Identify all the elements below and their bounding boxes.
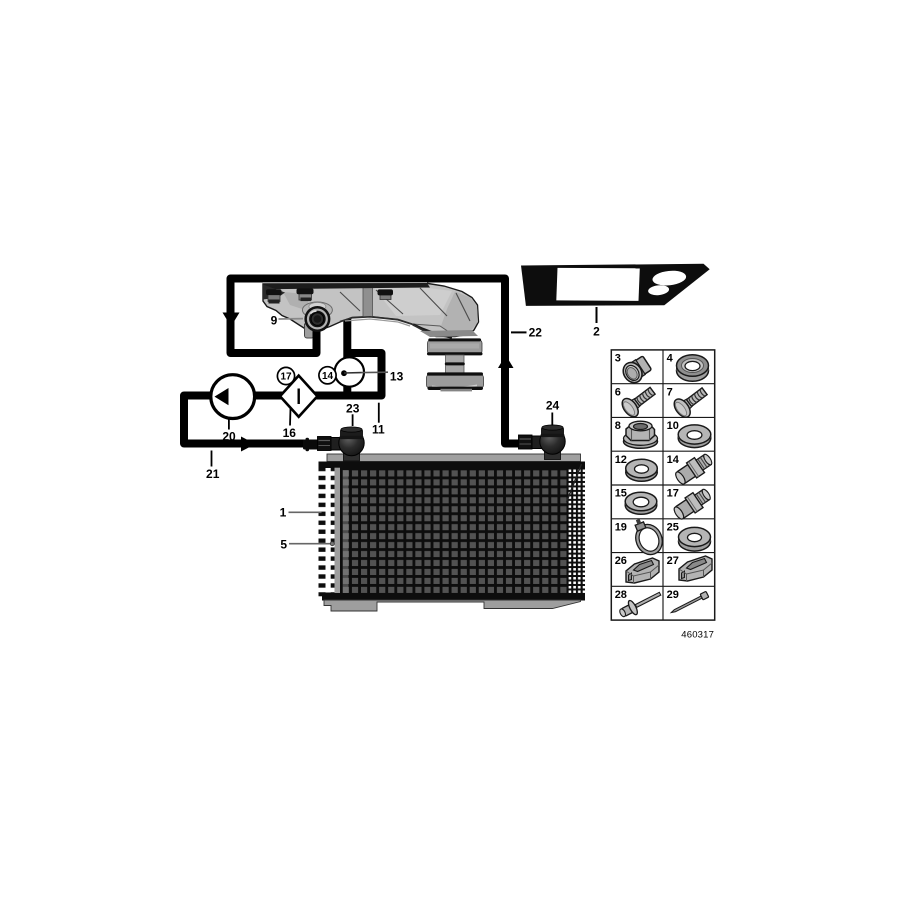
svg-text:27: 27 xyxy=(667,555,679,567)
svg-text:25: 25 xyxy=(667,521,679,533)
svg-text:14: 14 xyxy=(667,454,680,466)
svg-text:8: 8 xyxy=(615,420,621,432)
svg-text:2: 2 xyxy=(593,325,600,339)
svg-text:1: 1 xyxy=(280,506,287,520)
svg-text:29: 29 xyxy=(667,589,679,601)
svg-text:26: 26 xyxy=(615,555,627,567)
svg-text:28: 28 xyxy=(615,589,627,601)
svg-text:17: 17 xyxy=(667,488,679,500)
svg-text:12: 12 xyxy=(615,454,627,466)
svg-text:4: 4 xyxy=(667,353,674,365)
svg-text:22: 22 xyxy=(529,326,543,340)
svg-text:460317: 460317 xyxy=(681,630,714,641)
svg-text:9: 9 xyxy=(271,313,278,327)
svg-text:23: 23 xyxy=(346,401,360,415)
svg-text:5: 5 xyxy=(280,537,287,551)
svg-text:10: 10 xyxy=(667,420,679,432)
svg-text:20: 20 xyxy=(222,430,236,444)
svg-text:6: 6 xyxy=(615,386,621,398)
svg-text:21: 21 xyxy=(206,467,220,481)
svg-text:19: 19 xyxy=(615,521,627,533)
svg-text:17: 17 xyxy=(280,372,292,383)
svg-text:24: 24 xyxy=(546,399,560,413)
svg-text:13: 13 xyxy=(390,370,404,384)
svg-text:16: 16 xyxy=(283,426,297,440)
svg-text:11: 11 xyxy=(372,423,385,437)
svg-text:15: 15 xyxy=(615,488,627,500)
svg-text:14: 14 xyxy=(322,371,334,382)
svg-text:3: 3 xyxy=(615,353,621,365)
svg-text:7: 7 xyxy=(667,386,673,398)
